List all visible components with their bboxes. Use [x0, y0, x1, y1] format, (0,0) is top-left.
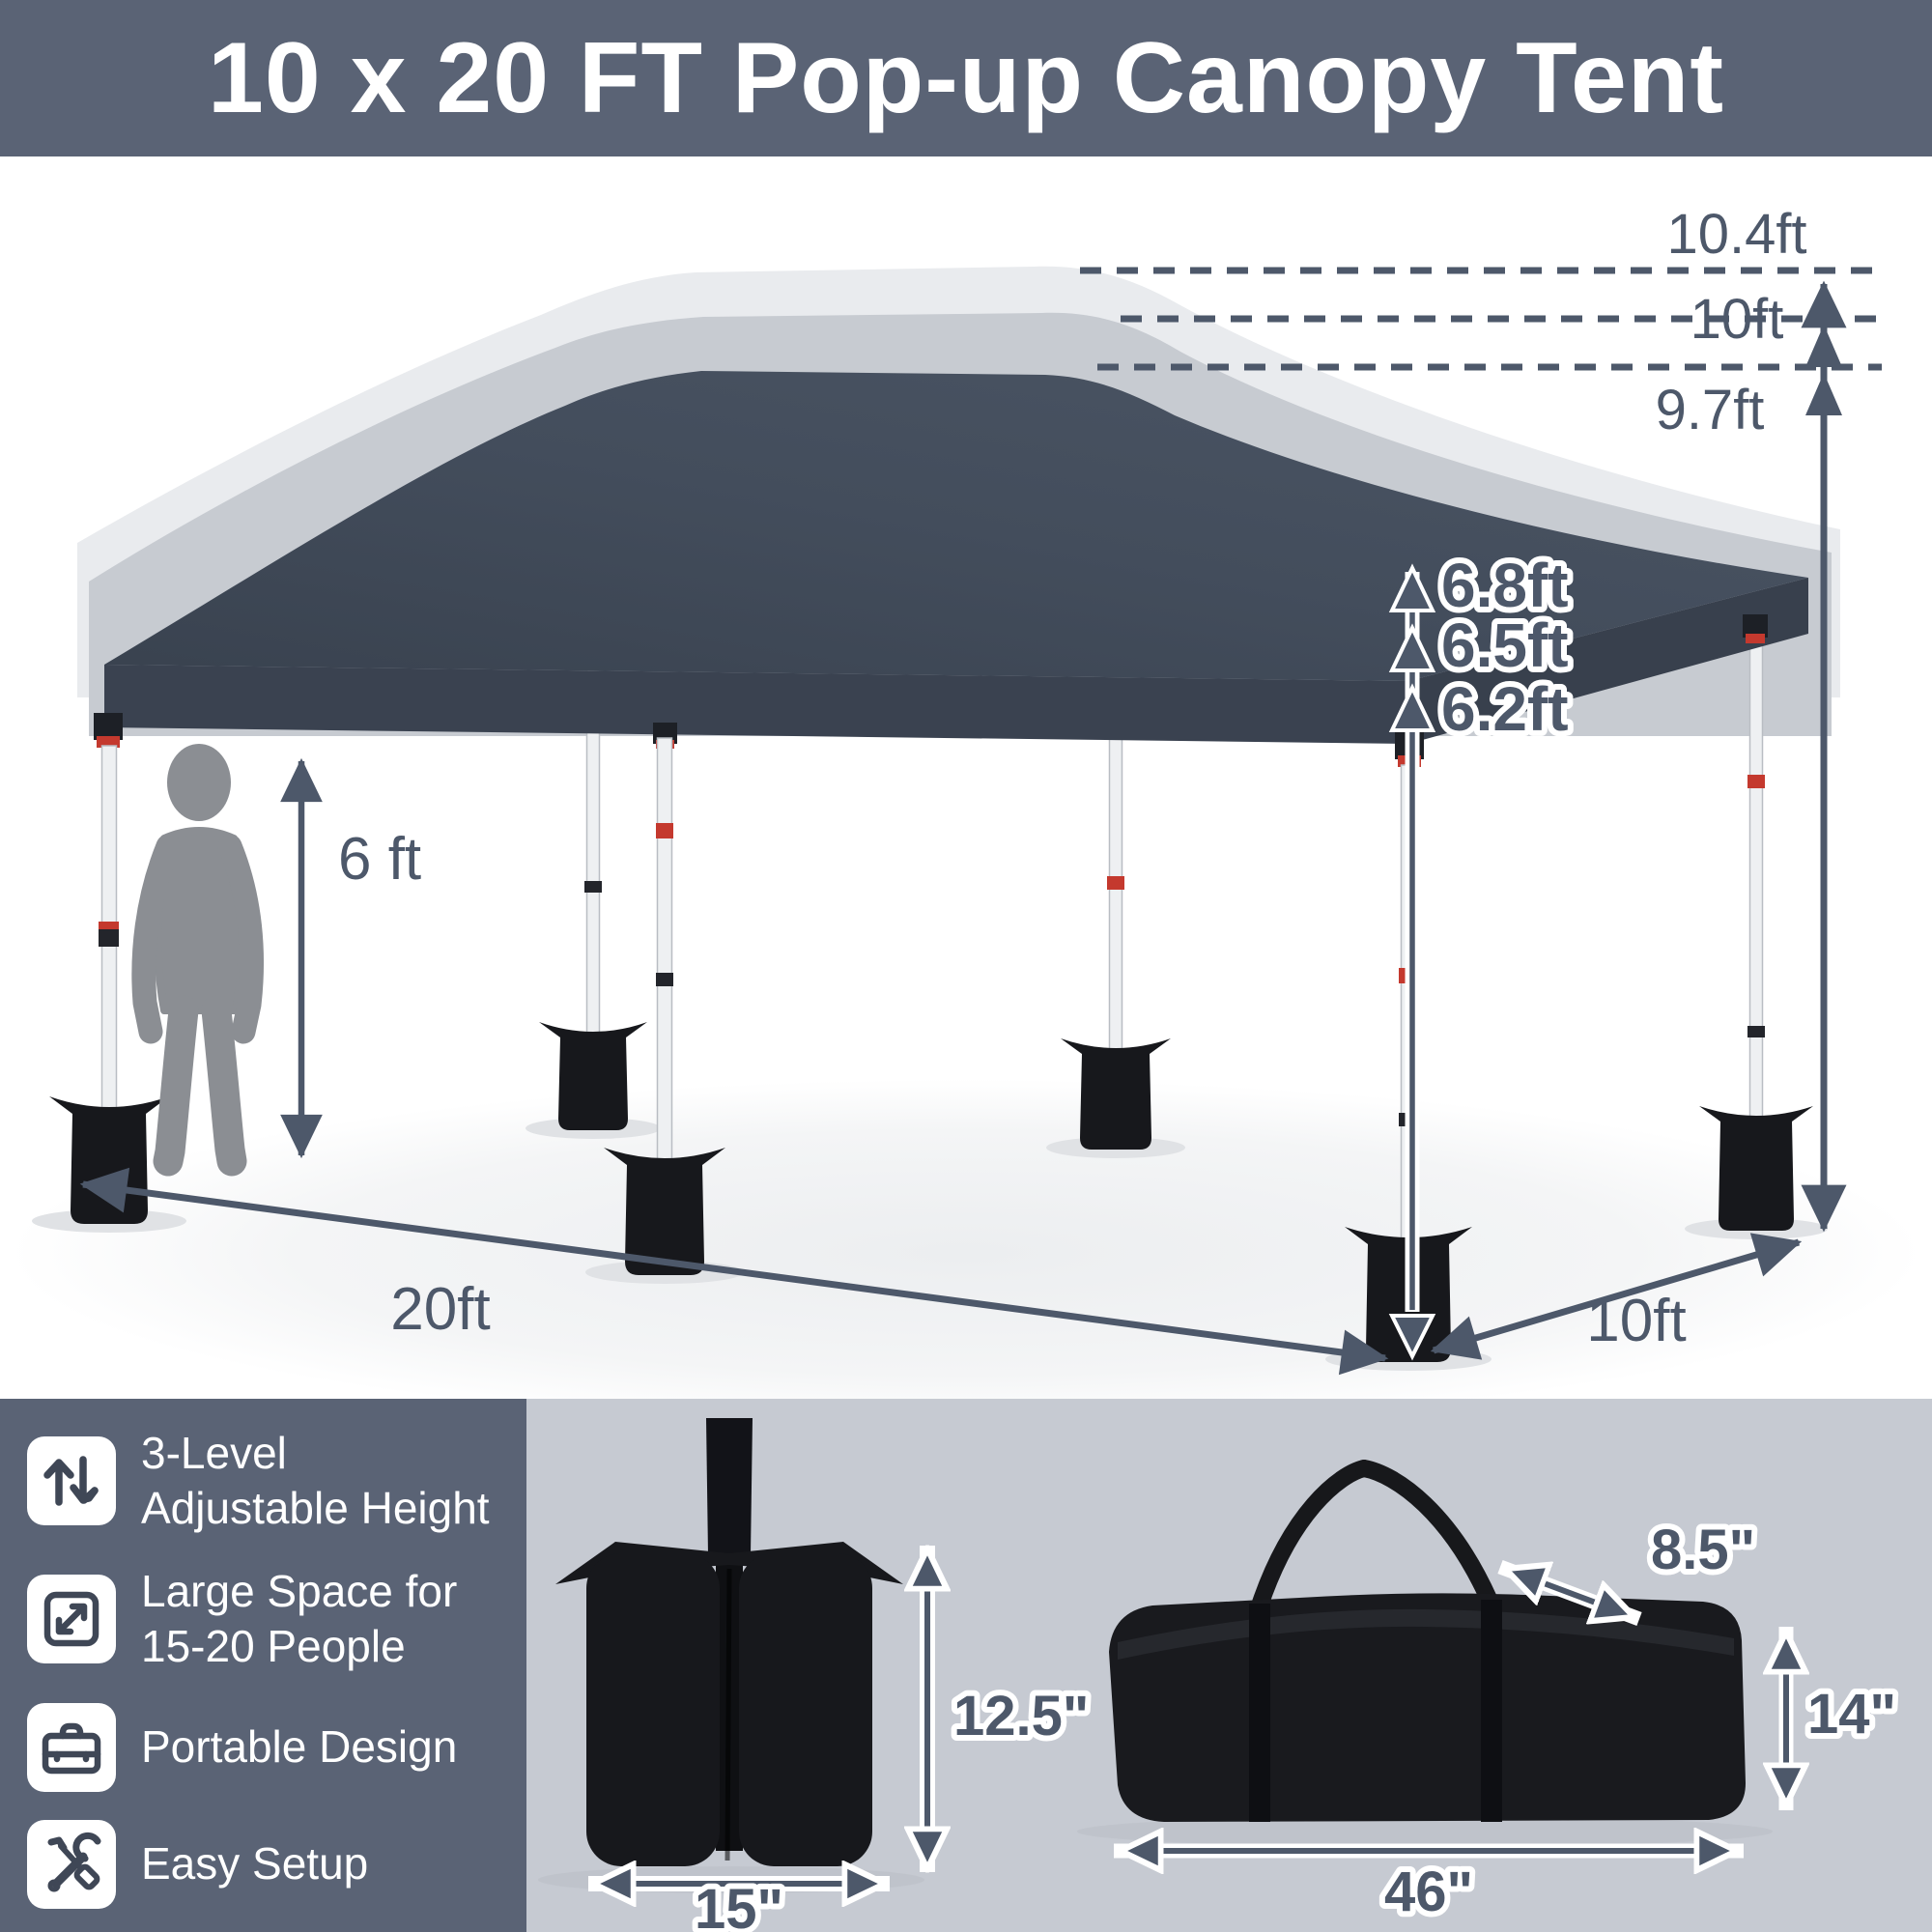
peak-height-max-label: 10.4ft	[1666, 203, 1806, 266]
peak-height-min-label: 9.7ft	[1656, 379, 1765, 441]
bottom-section: 3-Level Adjustable Height Large Space fo…	[0, 1399, 1932, 1932]
feature-line: 3-Level	[141, 1426, 490, 1481]
feature-label: 3-Level Adjustable Height	[141, 1426, 490, 1536]
feature-large-space: Large Space for 15-20 People	[27, 1564, 513, 1674]
length-label: 20ft	[390, 1276, 490, 1343]
header-banner: 10 x 20 FT Pop-up Canopy Tent	[0, 0, 1932, 156]
depth-label: 10ft	[1586, 1288, 1686, 1354]
peak-height-mid-label: 10ft	[1690, 288, 1784, 351]
feature-line: Portable Design	[141, 1719, 457, 1775]
feature-label: Large Space for 15-20 People	[141, 1564, 457, 1674]
expand-icon	[27, 1575, 116, 1663]
eave-height-mid-label: 6.5ft	[1441, 611, 1569, 680]
sand-bag: 12.5" 15"	[538, 1418, 1089, 1932]
sandbag-height-label: 12.5"	[953, 1685, 1089, 1747]
feature-line: 15-20 People	[141, 1619, 457, 1674]
feature-easy-setup: Easy Setup	[27, 1820, 513, 1909]
feature-adjustable-height: 3-Level Adjustable Height	[27, 1426, 513, 1536]
tent-diagram: 10.4ft 10ft 9.7ft 6.8ft 6.5ft 6.2ft 6 ft…	[0, 156, 1932, 1399]
sandbag-width-label: 15"	[695, 1878, 783, 1932]
peak-height-arrow	[1805, 284, 1842, 1229]
person-height-label: 6 ft	[338, 826, 421, 893]
feature-line: Easy Setup	[141, 1836, 368, 1891]
carrybag-depth-label: 8.5"	[1651, 1519, 1755, 1581]
eave-height-min-label: 6.2ft	[1441, 674, 1569, 744]
accessories-illustration: 12.5" 15"	[526, 1399, 1932, 1932]
height-adjust-icon	[27, 1436, 116, 1525]
tent-illustration: 10.4ft 10ft 9.7ft 6.8ft 6.5ft 6.2ft 6 ft…	[0, 156, 1932, 1399]
carry-bag: 8.5" 14" 46"	[1077, 1468, 1896, 1923]
feature-label: Easy Setup	[141, 1836, 368, 1891]
tools-icon	[27, 1820, 116, 1909]
feature-line: Large Space for	[141, 1564, 457, 1619]
feature-line: Adjustable Height	[141, 1481, 490, 1536]
feature-label: Portable Design	[141, 1719, 457, 1775]
carrybag-length-label: 46"	[1384, 1861, 1473, 1923]
accessories-panel: 12.5" 15"	[526, 1399, 1932, 1932]
feature-portable: Portable Design	[27, 1703, 513, 1792]
person-silhouette	[144, 744, 252, 1161]
page-title: 10 x 20 FT Pop-up Canopy Tent	[208, 21, 1724, 136]
carrybag-height-label: 14"	[1807, 1683, 1896, 1746]
features-sidebar: 3-Level Adjustable Height Large Space fo…	[0, 1399, 526, 1932]
briefcase-icon	[27, 1703, 116, 1792]
product-infographic: 10 x 20 FT Pop-up Canopy Tent	[0, 0, 1932, 1932]
